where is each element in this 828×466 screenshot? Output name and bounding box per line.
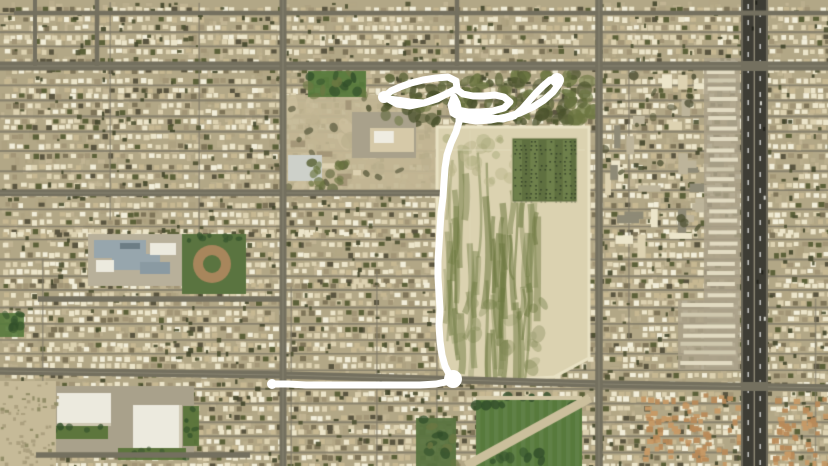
aerial-map-view[interactable] xyxy=(0,0,828,466)
satellite-imagery xyxy=(0,0,828,466)
